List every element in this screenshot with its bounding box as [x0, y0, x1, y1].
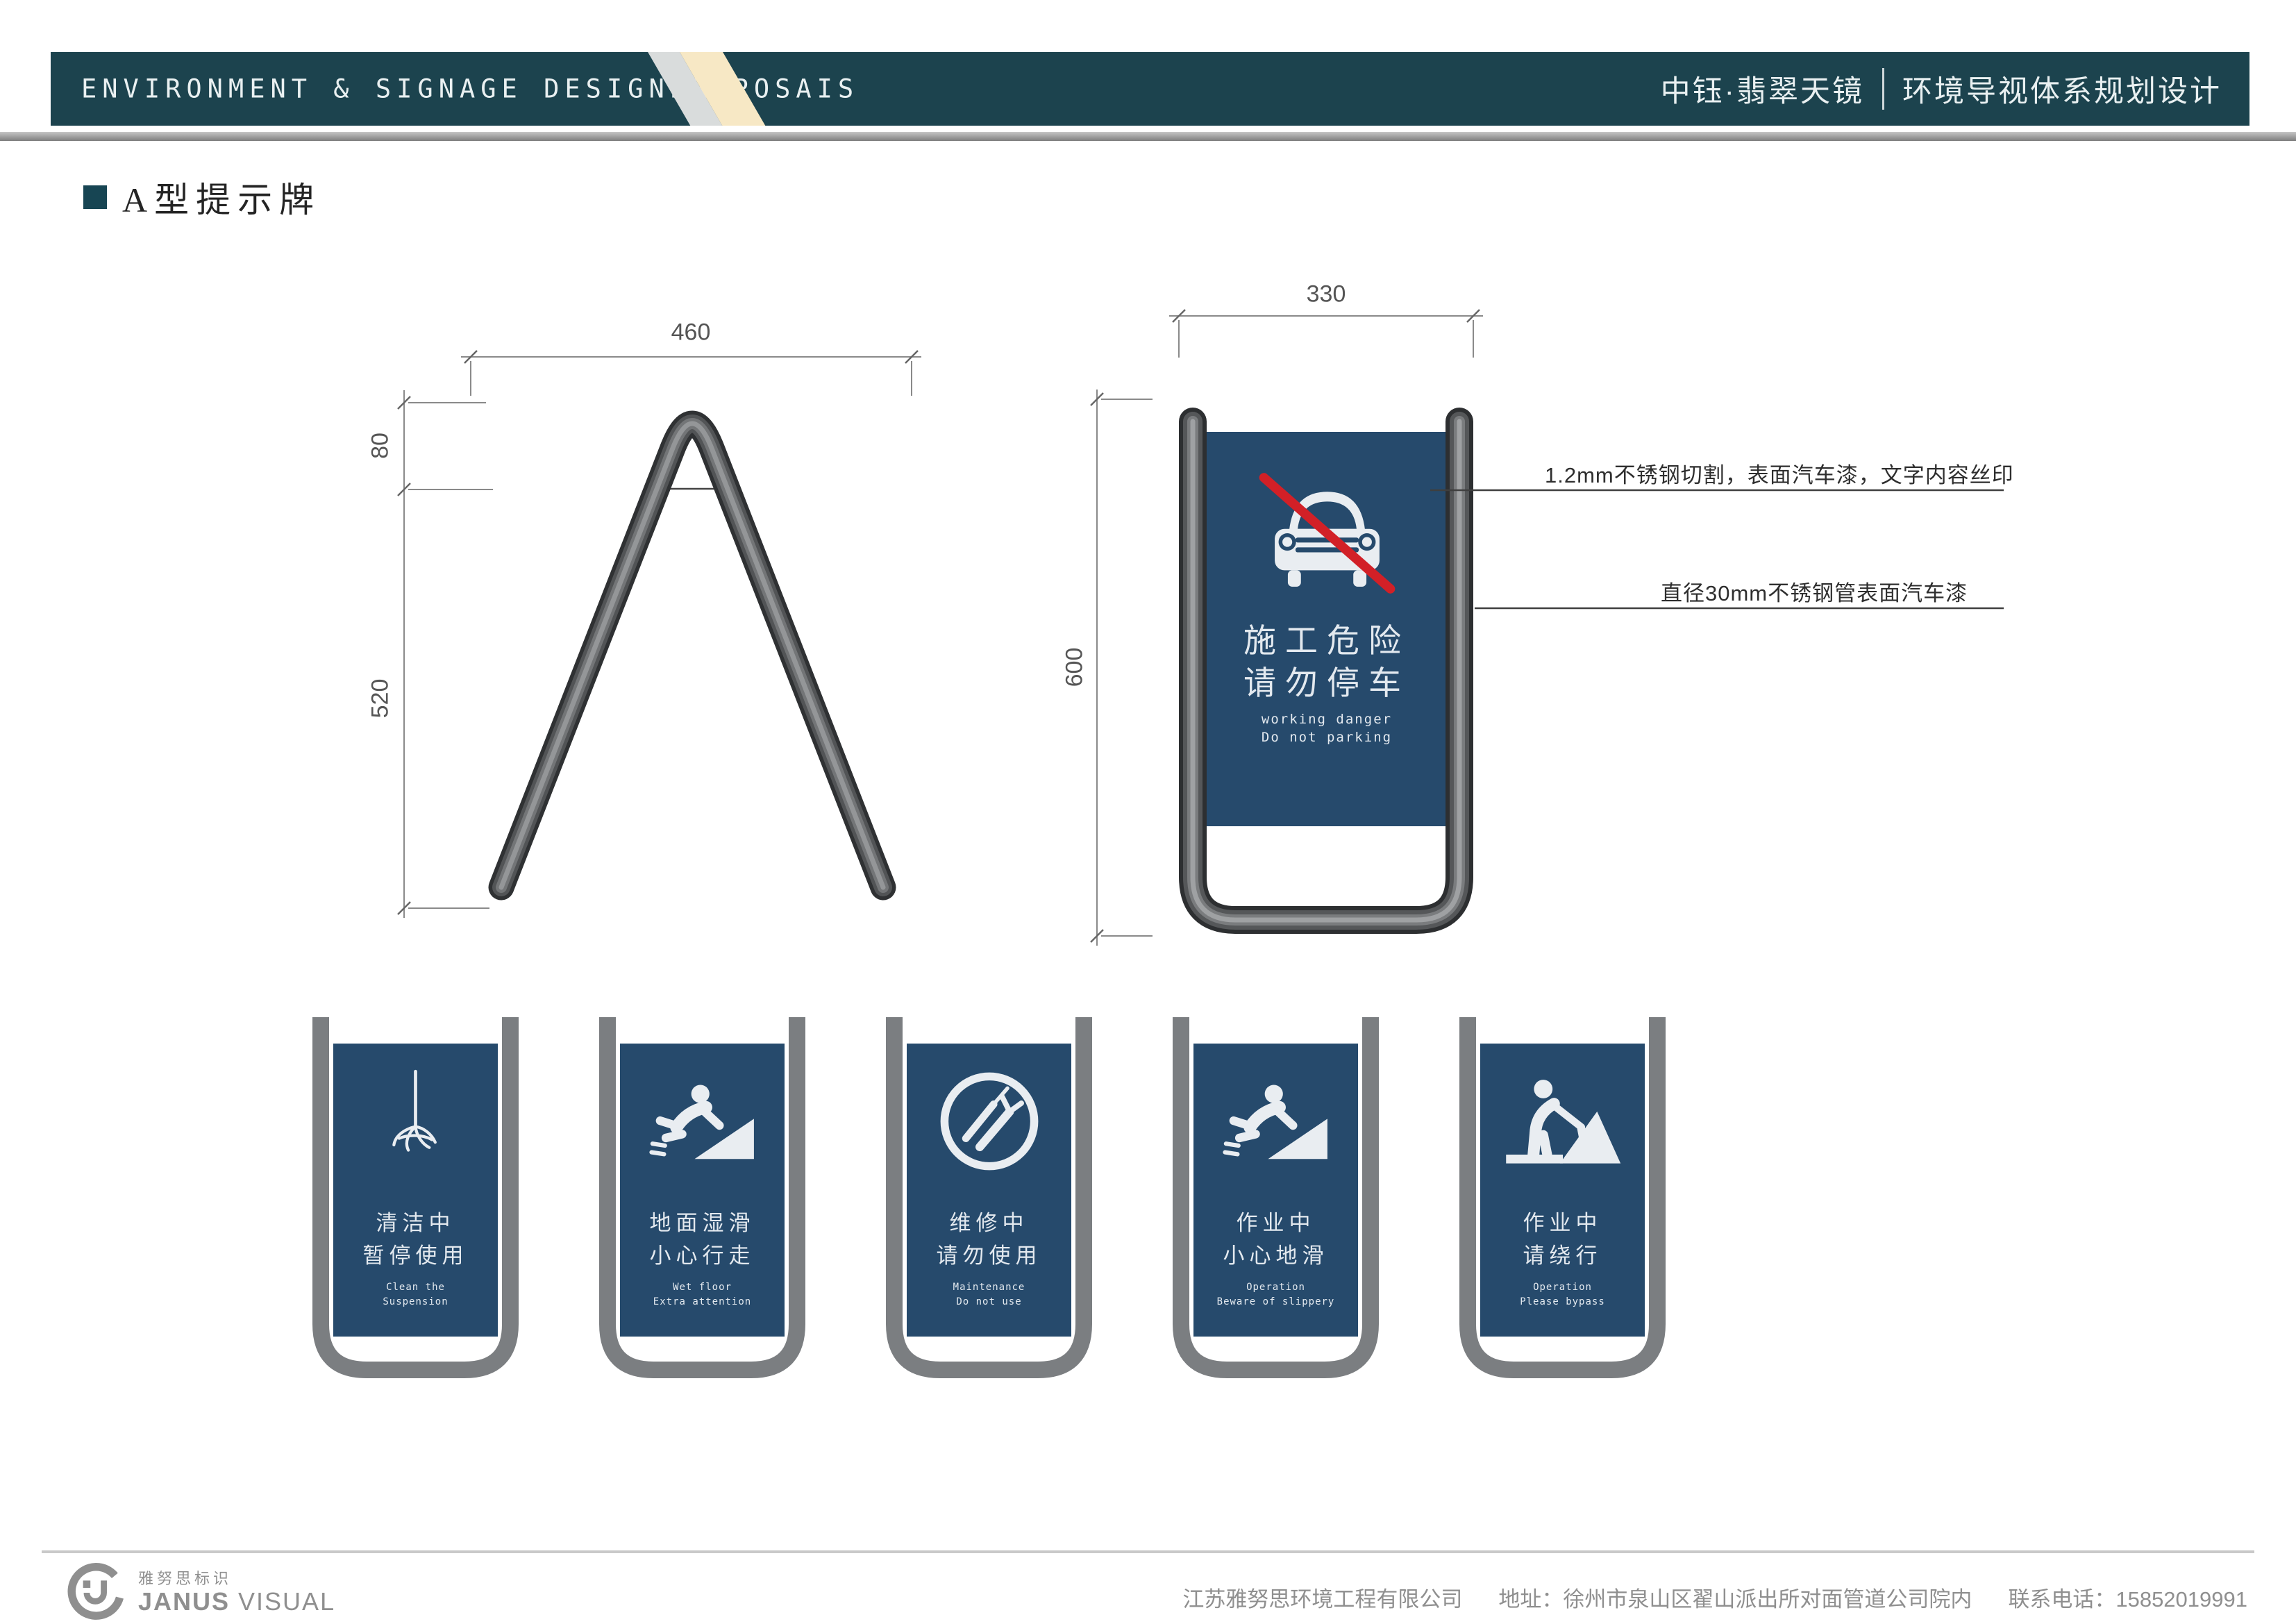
header-rule	[0, 132, 2296, 141]
main-sign-en-text: working danger Do not parking	[1262, 711, 1392, 746]
sign-en-text: Wet floor Extra attention	[653, 1280, 751, 1309]
footer-logo-en: JANUS VISUAL	[138, 1587, 335, 1616]
sign-cn-text: 清洁中 暂停使用	[363, 1207, 469, 1272]
footer-logo: 雅努思标识 JANUS VISUAL	[66, 1562, 335, 1623]
no-parking-car-icon	[1256, 472, 1398, 594]
dim-label-width-460: 460	[671, 319, 711, 346]
main-sign-cn-text: 施工危险 请勿停车	[1243, 621, 1410, 705]
main-sign-panel: 施工危险 请勿停车 working danger Do not parking	[1203, 432, 1451, 826]
footer-phone: 联系电话：15852019991	[2008, 1582, 2247, 1613]
sign-cn-text: 地面湿滑 小心行走	[650, 1207, 755, 1272]
project-name: 中钰·翡翠天镜	[1661, 67, 1864, 110]
header-subtitle: 环境导视体系规划设计	[1902, 67, 2222, 110]
small-sign-panel-slippery: 作业中 小心地滑 Operation Beware of slippery	[1193, 1044, 1358, 1337]
footer-address: 地址：徐州市泉山区翟山派出所对面管道公司院内	[1498, 1582, 1972, 1613]
header-project-block: 中钰·翡翠天镜 环境导视体系规划设计	[1661, 67, 2222, 110]
footer-contact-info: 江苏雅努思环境工程有限公司 地址：徐州市泉山区翟山派出所对面管道公司院内 联系电…	[1182, 1582, 2247, 1613]
header-band: ENVIRONMENT & SIGNAGE DESIGNPROPOSAIS 中钰…	[51, 52, 2249, 126]
footer-logo-cn: 雅努思标识	[138, 1570, 335, 1587]
sign-cn-text: 作业中 小心地滑	[1223, 1207, 1329, 1272]
dim-label-width-330: 330	[1307, 281, 1346, 308]
annotation-panel-material: 1.2mm不锈钢切割，表面汽车漆，文字内容丝印	[1545, 458, 2014, 489]
a-frame-tube	[501, 424, 883, 887]
small-sign-panel-cleaning: 清洁中 暂停使用 Clean the Suspension	[333, 1044, 498, 1337]
section-title: A型提示牌	[83, 172, 321, 222]
footer-company: 江苏雅努思环境工程有限公司	[1182, 1582, 1462, 1613]
sign-en-text: Operation Please bypass	[1520, 1280, 1605, 1309]
small-sign-panel-wet-floor: 地面湿滑 小心行走 Wet floor Extra attention	[620, 1044, 785, 1337]
footer-rule	[42, 1550, 2254, 1553]
janus-logo-icon	[66, 1562, 127, 1623]
sign-en-text: Operation Beware of slippery	[1217, 1280, 1335, 1309]
sign-cn-text: 维修中 请勿使用	[937, 1207, 1042, 1272]
annotation-tube-material: 直径30mm不锈钢管表面汽车漆	[1661, 576, 1968, 607]
small-sign-panel-maintenance: 维修中 请勿使用 Maintenance Do not use	[907, 1044, 1071, 1337]
small-sign-panel-bypass: 作业中 请绕行 Operation Please bypass	[1480, 1044, 1645, 1337]
slip-icon	[1222, 1082, 1330, 1161]
maintenance-icon	[934, 1066, 1045, 1177]
sign-cn-text: 作业中 请绕行	[1523, 1207, 1602, 1272]
construction-worker-icon	[1503, 1076, 1623, 1166]
dim-label-height-600: 600	[1062, 648, 1089, 687]
sign-en-text: Clean the Suspension	[383, 1280, 448, 1309]
dim-label-bottom-520: 520	[367, 679, 394, 719]
sign-en-text: Maintenance Do not use	[953, 1280, 1025, 1309]
mop-icon	[386, 1069, 445, 1174]
section-bullet-square	[83, 185, 107, 209]
header-divider	[1882, 68, 1884, 110]
section-title-text: A型提示牌	[122, 172, 321, 222]
dim-label-top-80: 80	[367, 433, 394, 459]
technical-drawing-linework	[0, 0, 2296, 1624]
slip-icon	[648, 1082, 756, 1161]
